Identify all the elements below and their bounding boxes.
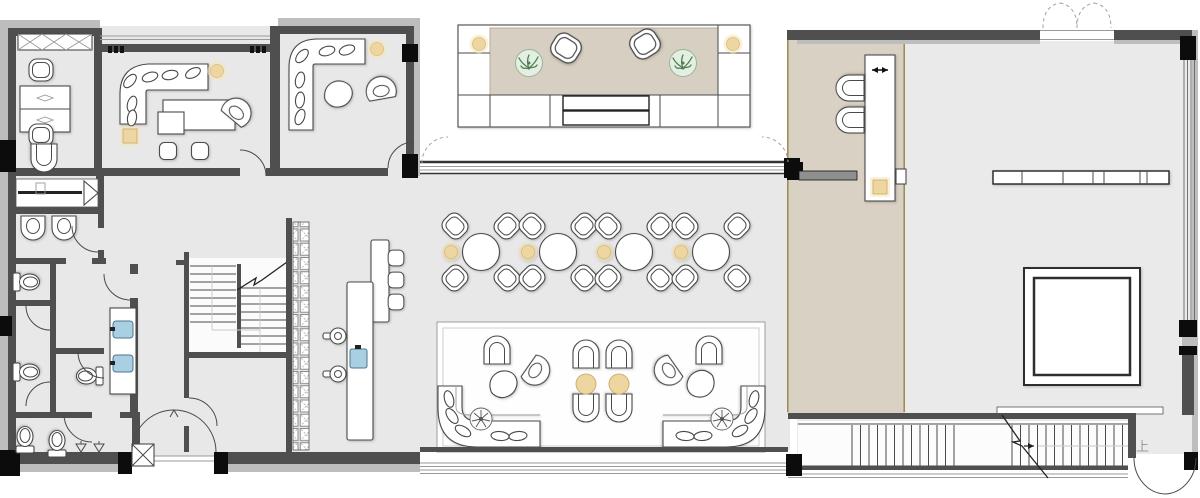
console-drawers bbox=[563, 96, 649, 125]
toilet bbox=[77, 367, 104, 385]
step-edge bbox=[997, 407, 1163, 414]
sink bbox=[113, 321, 133, 338]
sink bbox=[113, 355, 133, 372]
armchair bbox=[573, 340, 599, 368]
round-side-table bbox=[576, 374, 596, 394]
terrace-bar bbox=[458, 25, 750, 127]
armchair bbox=[484, 336, 510, 364]
potted-plant bbox=[670, 50, 697, 77]
urinal bbox=[21, 216, 45, 240]
ramp-corridor bbox=[16, 179, 98, 207]
wardrobe-cabinet bbox=[18, 34, 92, 50]
desk-chair bbox=[29, 124, 53, 146]
bar-stool bbox=[388, 272, 404, 288]
storefront-north bbox=[402, 137, 800, 178]
entrance-door-swings bbox=[1043, 3, 1111, 28]
pebble-table bbox=[687, 370, 714, 397]
armchair bbox=[696, 336, 722, 364]
display-shelf bbox=[993, 171, 1169, 184]
stairs-up-label: 上 bbox=[1136, 440, 1149, 455]
side-table-lamp bbox=[120, 126, 140, 146]
stool bbox=[192, 143, 209, 160]
ceiling-lamp bbox=[368, 40, 387, 59]
armchair bbox=[606, 340, 632, 368]
stool bbox=[160, 143, 177, 160]
floor-plan-canvas: 上 bbox=[0, 0, 1200, 498]
door-swing bbox=[422, 137, 448, 163]
desk-chair bbox=[29, 59, 53, 81]
pebble-table bbox=[490, 371, 517, 398]
faucet bbox=[355, 345, 361, 349]
glass-block-partition bbox=[286, 218, 309, 452]
washbasin-counter bbox=[110, 308, 136, 394]
round-side-table bbox=[609, 374, 629, 394]
guest-chair bbox=[31, 144, 57, 172]
armchair bbox=[573, 394, 599, 422]
armchair bbox=[606, 394, 632, 422]
toilet bbox=[48, 431, 66, 458]
counter-chair bbox=[836, 75, 864, 101]
counter-chair bbox=[836, 107, 864, 133]
bar-sink bbox=[350, 349, 367, 368]
ceiling-lamp bbox=[208, 62, 227, 81]
central-platform bbox=[1024, 268, 1140, 385]
lounge-area bbox=[437, 322, 765, 452]
floor-plan-drawing: 上 bbox=[0, 0, 1200, 498]
table-lamp bbox=[470, 35, 489, 54]
shaft-box bbox=[132, 444, 154, 466]
table-lamp bbox=[724, 35, 743, 54]
bar-stool bbox=[388, 294, 404, 310]
toilet bbox=[16, 427, 34, 454]
toilet bbox=[13, 273, 40, 291]
toilet bbox=[13, 363, 40, 381]
floor-lamp bbox=[870, 177, 890, 197]
storefront-south bbox=[420, 447, 788, 474]
potted-plant bbox=[516, 50, 543, 77]
bar-stool bbox=[388, 250, 404, 266]
entrance-north bbox=[1040, 3, 1114, 41]
